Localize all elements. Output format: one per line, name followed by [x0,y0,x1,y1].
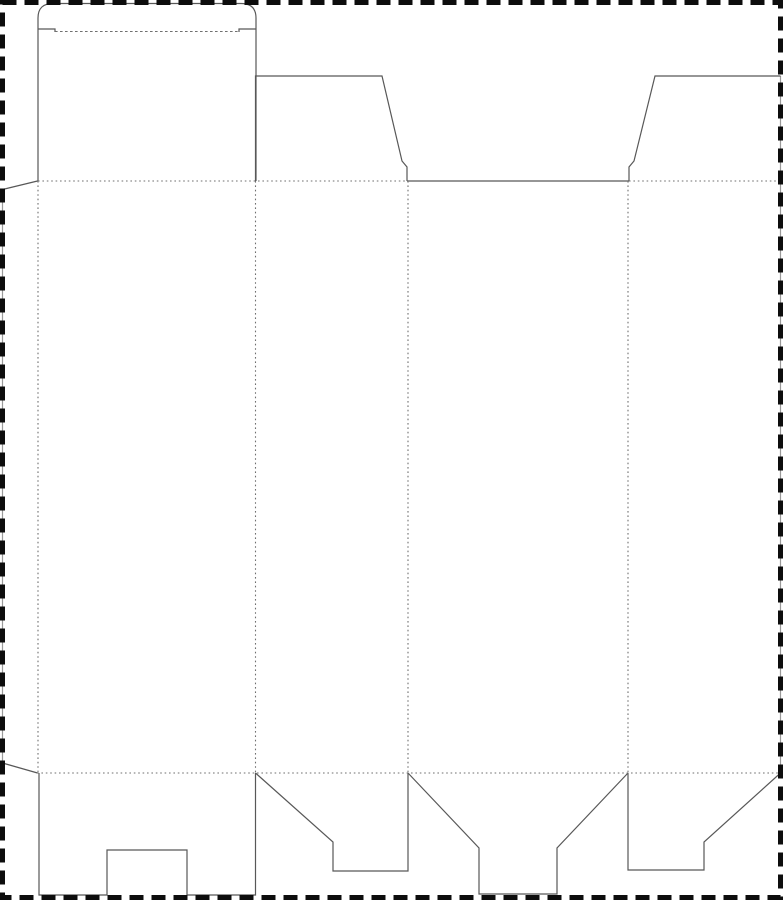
tuck-lid-outline [38,4,256,182]
glue-flap-bottom-edge [3,763,38,773]
bottom-flap-notched [39,773,256,895]
border-layer [3,3,781,898]
dieline-template-page [0,0,783,900]
dieline-diagram [0,0,783,900]
fold-lines-layer [37,32,781,774]
bottom-tuck-flap [408,773,628,894]
bottom-dust-flap-right [628,773,781,870]
bottom-dust-flap-left [256,773,409,871]
tuck-shoulder-right [239,29,256,32]
top-dust-flap-right [629,76,781,181]
sheet-cut-border [3,3,781,898]
glue-flap-top-edge [3,181,38,190]
top-dust-flap-left [256,76,408,181]
cut-lines-layer [3,4,781,896]
tuck-shoulder-left [38,29,55,32]
